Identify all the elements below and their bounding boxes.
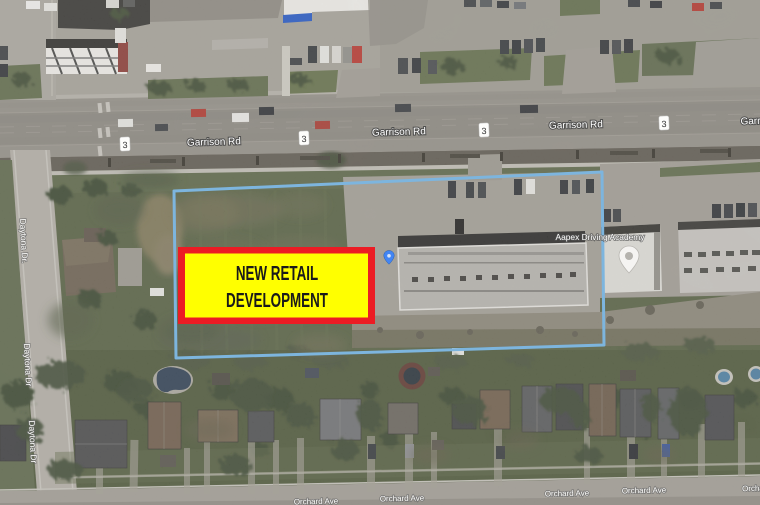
svg-text:Garrison Rd: Garrison Rd (549, 119, 603, 132)
svg-text:Orchard Ave: Orchard Ave (380, 494, 425, 504)
svg-text:Orchard Ave: Orchard Ave (545, 489, 590, 499)
svg-text:NEW RETAIL: NEW RETAIL (236, 262, 318, 284)
svg-text:DEVELOPMENT: DEVELOPMENT (226, 289, 328, 311)
svg-text:3: 3 (122, 140, 127, 150)
svg-text:Garriso: Garriso (740, 116, 760, 128)
svg-text:Garrison Rd: Garrison Rd (372, 126, 426, 139)
svg-text:Orcha: Orcha (742, 484, 760, 493)
svg-text:Orchard Ave: Orchard Ave (294, 497, 339, 505)
svg-text:3: 3 (661, 119, 666, 129)
svg-text:Garrison Rd: Garrison Rd (187, 136, 241, 149)
svg-text:3: 3 (301, 134, 306, 144)
svg-text:Orchard Ave: Orchard Ave (622, 486, 667, 496)
svg-text:Aapex Driving Academy: Aapex Driving Academy (556, 232, 646, 242)
svg-text:3: 3 (481, 126, 486, 136)
